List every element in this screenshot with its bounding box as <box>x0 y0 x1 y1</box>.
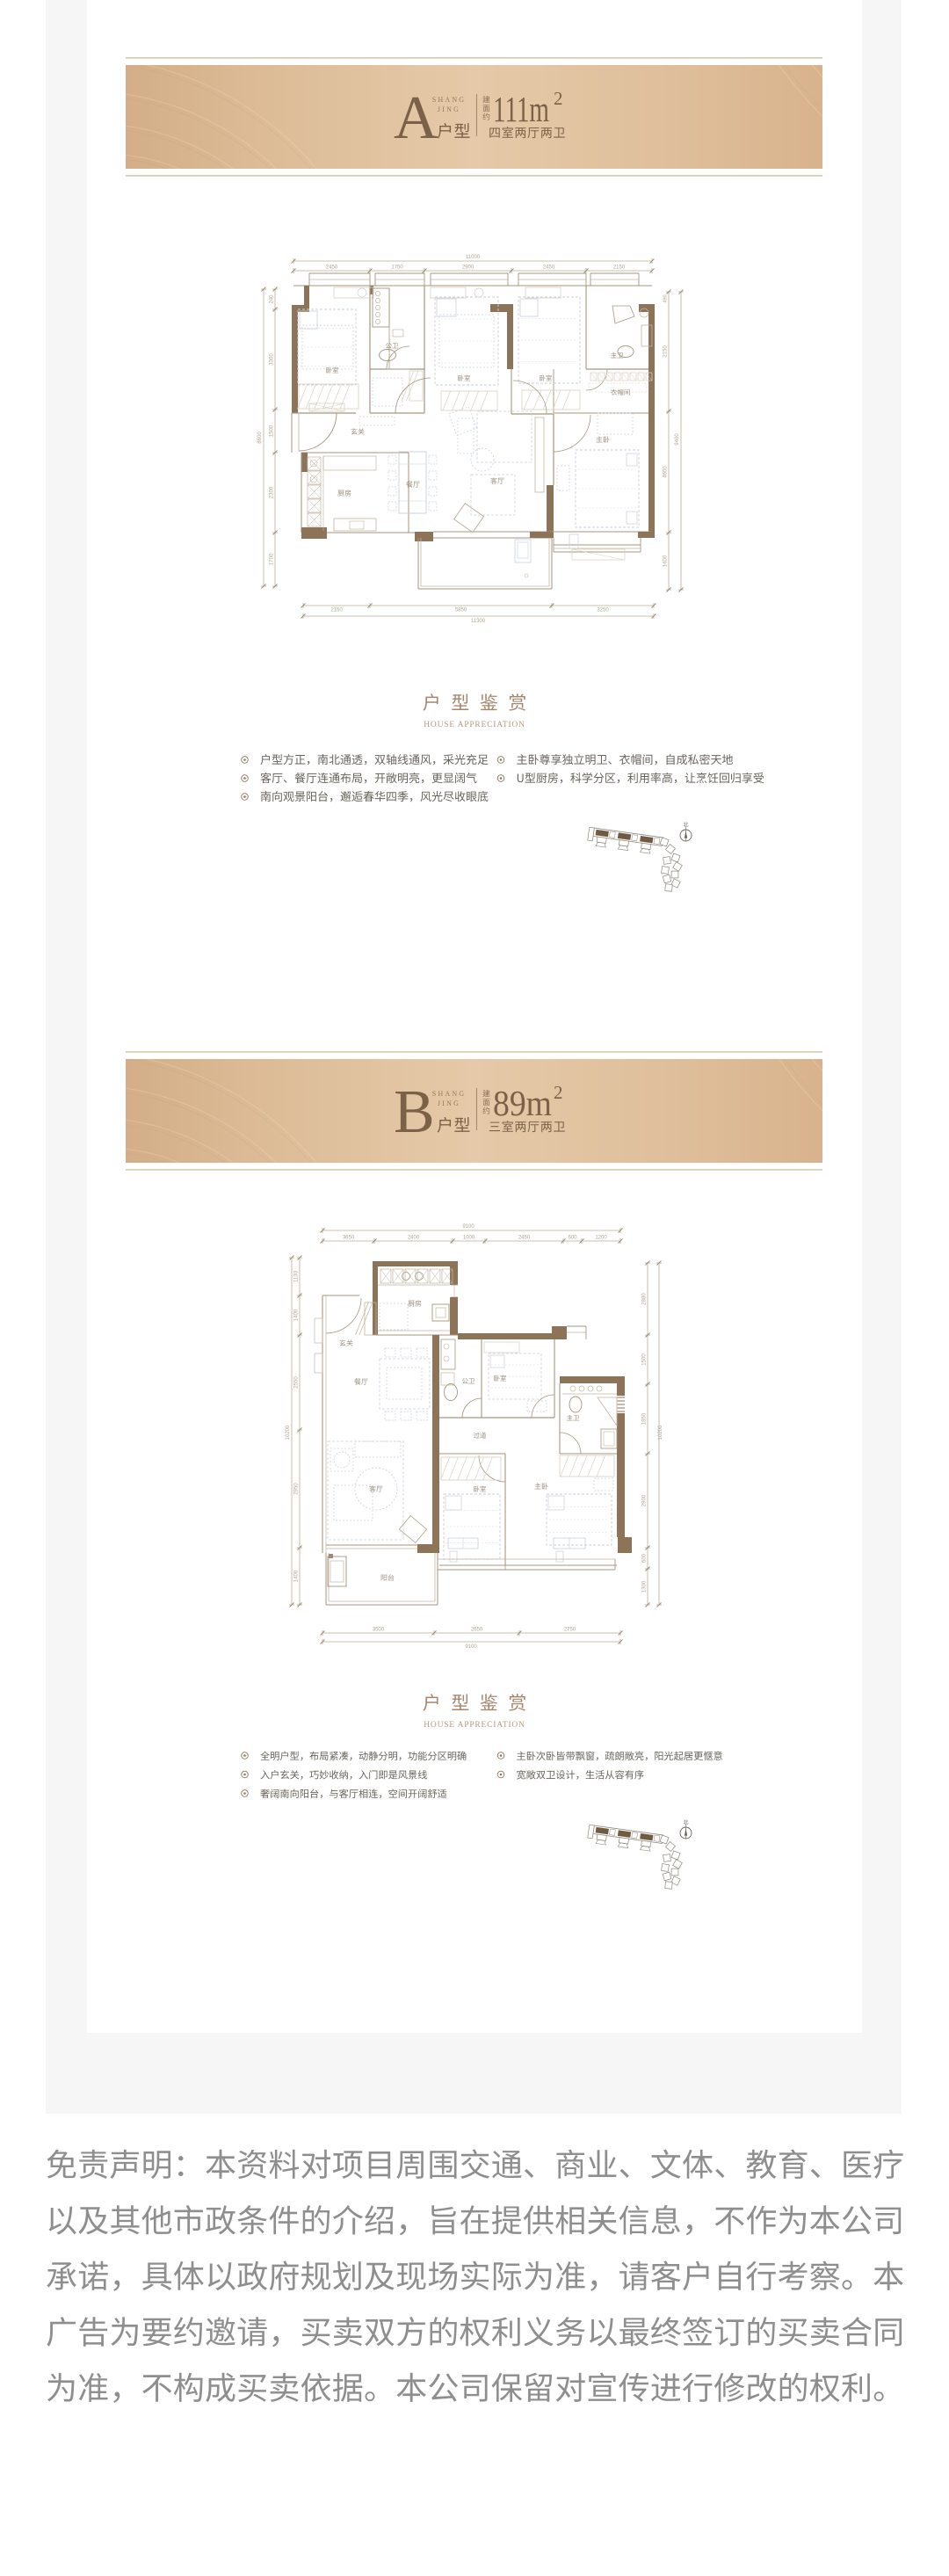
svg-text:11000: 11000 <box>466 255 481 260</box>
svg-text:2400: 2400 <box>408 1236 420 1241</box>
svg-text:89m: 89m <box>493 1083 552 1123</box>
svg-text:3300: 3300 <box>270 353 275 366</box>
svg-text:1130: 1130 <box>294 1270 300 1282</box>
svg-text:1300: 1300 <box>642 1580 648 1593</box>
svg-text:3500: 3500 <box>373 1628 385 1633</box>
svg-text:A: A <box>394 84 438 152</box>
svg-text:2: 2 <box>554 88 563 109</box>
svg-text:600: 600 <box>568 1236 577 1241</box>
svg-text:240: 240 <box>270 294 275 304</box>
svg-text:1000: 1000 <box>463 1236 475 1241</box>
svg-text:8600: 8600 <box>257 432 263 444</box>
svg-text:1500: 1500 <box>270 424 275 437</box>
svg-text:3250: 3250 <box>597 608 609 613</box>
svg-text:JING: JING <box>438 1099 460 1107</box>
svg-text:2900: 2900 <box>642 1494 648 1506</box>
svg-text:2150: 2150 <box>330 608 343 613</box>
svg-text:11300: 11300 <box>471 619 486 624</box>
svg-text:2450: 2450 <box>326 265 338 271</box>
svg-text:10200: 10200 <box>286 1425 291 1440</box>
svg-text:HOUSE APPRECIATION: HOUSE APPRECIATION <box>424 1721 525 1730</box>
svg-text:B: B <box>394 1078 435 1146</box>
svg-text:490: 490 <box>663 294 669 302</box>
svg-text:2150: 2150 <box>663 345 669 358</box>
svg-text:HOUSE APPRECIATION: HOUSE APPRECIATION <box>424 721 525 729</box>
svg-text:SHANG: SHANG <box>432 96 467 104</box>
svg-text:1200: 1200 <box>595 1236 607 1241</box>
svg-text:600: 600 <box>642 1553 648 1563</box>
svg-text:2900: 2900 <box>462 265 474 271</box>
svg-text:2650: 2650 <box>471 1628 483 1633</box>
svg-text:2: 2 <box>554 1082 563 1103</box>
svg-text:3650: 3650 <box>343 1236 355 1241</box>
svg-text:5850: 5850 <box>455 608 467 613</box>
svg-text:1500: 1500 <box>642 1353 648 1366</box>
svg-text:2880: 2880 <box>642 1293 648 1305</box>
svg-text:SHANG: SHANG <box>432 1090 467 1098</box>
svg-text:2950: 2950 <box>294 1483 300 1495</box>
svg-text:111m: 111m <box>493 89 549 129</box>
svg-text:2150: 2150 <box>613 265 626 271</box>
svg-text:9100: 9100 <box>462 1224 474 1230</box>
svg-text:10200: 10200 <box>658 1425 663 1440</box>
svg-text:1400: 1400 <box>294 1570 300 1582</box>
svg-text:4600: 4600 <box>663 466 669 478</box>
svg-text:1400: 1400 <box>294 1309 300 1321</box>
svg-text:1700: 1700 <box>270 553 275 565</box>
svg-text:JING: JING <box>438 105 460 113</box>
svg-text:1850: 1850 <box>642 1412 648 1425</box>
svg-text:2300: 2300 <box>270 486 275 498</box>
svg-text:1400: 1400 <box>663 555 669 567</box>
svg-text:2750: 2750 <box>564 1628 576 1633</box>
svg-text:9400: 9400 <box>675 433 680 446</box>
svg-text:2450: 2450 <box>543 265 555 271</box>
svg-text:1750: 1750 <box>391 265 403 271</box>
svg-text:2550: 2550 <box>294 1376 300 1389</box>
svg-text:9100: 9100 <box>465 1644 477 1650</box>
svg-text:2450: 2450 <box>518 1236 531 1241</box>
